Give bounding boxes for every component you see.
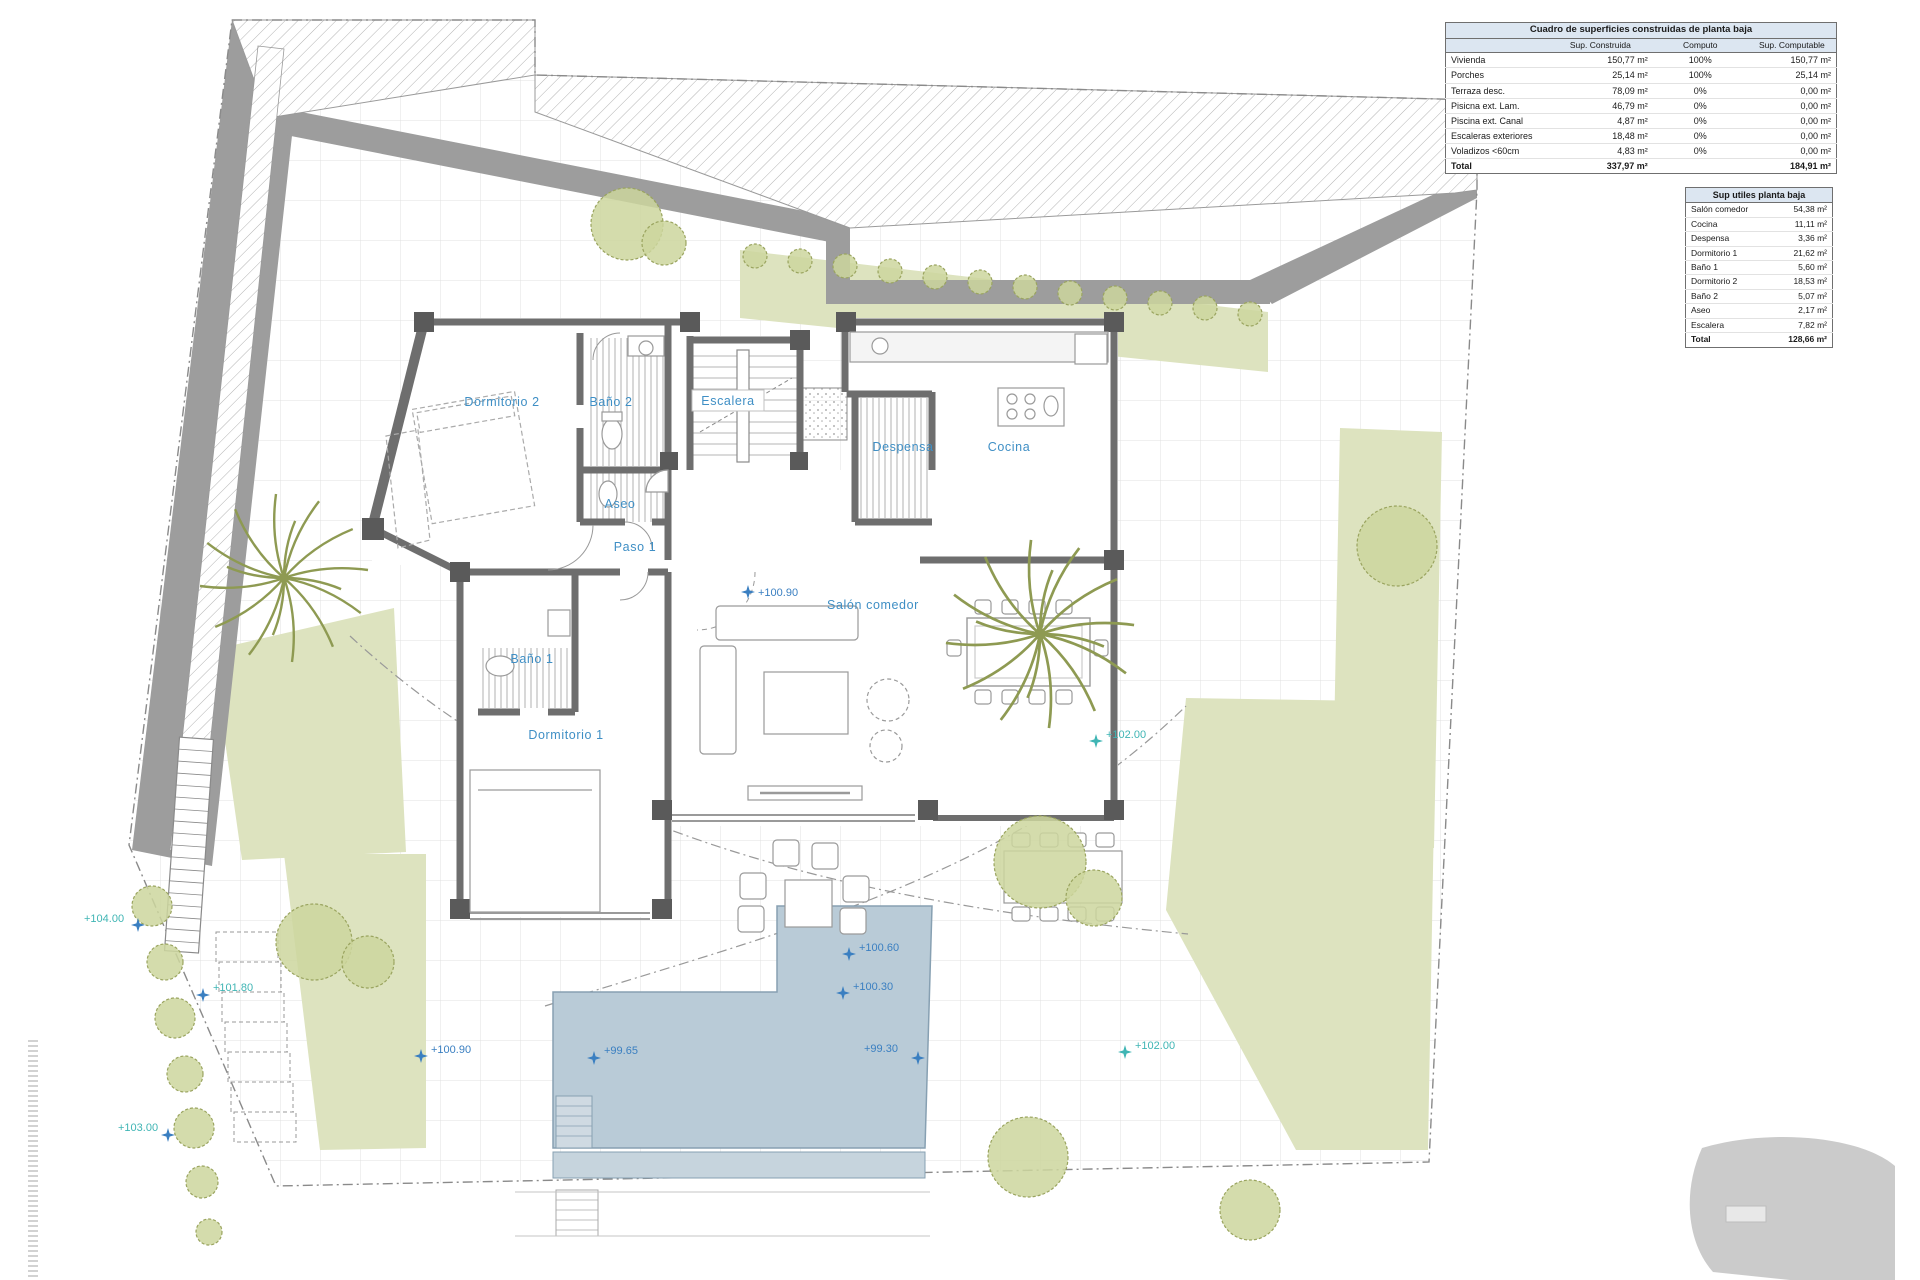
room-label-escalera: Escalera — [701, 394, 754, 408]
table-title-row: Sup utiles planta baja — [1686, 188, 1833, 203]
room-label-bano2: Baño 2 — [589, 395, 632, 409]
room-label-dormitorio1: Dormitorio 1 — [528, 728, 603, 742]
room-label-salon-comedor: Salón comedor — [827, 598, 919, 612]
col-header — [1446, 38, 1548, 52]
table-row: Escaleras exteriores 18,48 m² 0% 0,00 m² — [1446, 128, 1837, 143]
svg-text:+100.90: +100.90 — [758, 587, 798, 599]
table-row: Dormitorio 1 21,62 m² — [1686, 246, 1833, 260]
table-row: Cocina 11,11 m² — [1686, 217, 1833, 231]
svg-text:+99.30: +99.30 — [864, 1043, 898, 1055]
col-header: Sup. Construida — [1548, 38, 1653, 52]
room-label-aseo: Aseo — [605, 497, 636, 511]
table-row: Piscina ext. Canal 4,87 m² 0% 0,00 m² — [1446, 113, 1837, 128]
table-row: Baño 1 5,60 m² — [1686, 261, 1833, 275]
svg-text:+101.80: +101.80 — [213, 982, 253, 994]
pool-channel — [553, 1152, 925, 1178]
svg-text:+99.65: +99.65 — [604, 1045, 638, 1057]
table-row: Dormitorio 2 18,53 m² — [1686, 275, 1833, 289]
col-header: Computo — [1653, 38, 1748, 52]
lightwell — [798, 388, 847, 440]
fine-print-vertical-text — [28, 1040, 38, 1278]
level-marker: +103.00 — [118, 1122, 175, 1142]
svg-text:+102.00: +102.00 — [1135, 1040, 1175, 1052]
svg-text:+100.30: +100.30 — [853, 981, 893, 993]
pool-steps — [556, 1096, 592, 1148]
table-row: Aseo 2,17 m² — [1686, 304, 1833, 318]
table-row: Baño 2 5,07 m² — [1686, 289, 1833, 303]
room-label-cocina: Cocina — [988, 440, 1031, 454]
table-row: Pisicna ext. Lam. 46,79 m² 0% 0,00 m² — [1446, 98, 1837, 113]
corner-mask-blob — [1690, 1137, 1895, 1280]
table-row: Salón comedor 54,38 m² — [1686, 203, 1833, 217]
table-total-row: Total 128,66 m² — [1686, 333, 1833, 347]
svg-text:+100.90: +100.90 — [431, 1044, 471, 1056]
table-superficies-utiles: Sup utiles planta baja Salón comedor 54,… — [1685, 187, 1833, 348]
site-plan-drawing: Dormitorio 2 Baño 2 Escalera Despensa Co… — [0, 0, 1920, 1280]
table-row: Terraza desc. 78,09 m² 0% 0,00 m² — [1446, 83, 1837, 98]
room-label-paso1: Paso 1 — [614, 540, 657, 554]
floor-plan-sheet: Dormitorio 2 Baño 2 Escalera Despensa Co… — [0, 0, 1920, 1280]
table-row: Porches 25,14 m² 100% 25,14 m² — [1446, 68, 1837, 83]
table-superficies-construidas: Cuadro de superficies construidas de pla… — [1445, 22, 1837, 174]
table-row: Vivienda 150,77 m² 100% 150,77 m² — [1446, 53, 1837, 68]
room-label-dormitorio2: Dormitorio 2 — [464, 395, 539, 409]
table-row: Voladizos <60cm 4,83 m² 0% 0,00 m² — [1446, 144, 1837, 159]
table-row: Despensa 3,36 m² — [1686, 232, 1833, 246]
svg-text:+100.60: +100.60 — [859, 942, 899, 954]
table-title: Cuadro de superficies construidas de pla… — [1446, 23, 1837, 39]
svg-text:+102.00: +102.00 — [1106, 729, 1146, 741]
room-label-bano1: Baño 1 — [510, 652, 553, 666]
table-total-row: Total 337,97 m² 184,91 m² — [1446, 159, 1837, 174]
svg-text:+103.00: +103.00 — [118, 1122, 158, 1134]
table-row: Escalera 7,82 m² — [1686, 318, 1833, 332]
table-title: Sup utiles planta baja — [1686, 188, 1833, 203]
table-title-row: Cuadro de superficies construidas de pla… — [1446, 23, 1837, 39]
col-header: Sup. Computable — [1748, 38, 1837, 52]
room-label-despensa: Despensa — [872, 440, 933, 454]
pantry-floor — [858, 398, 928, 518]
svg-text:+104.00: +104.00 — [84, 913, 124, 925]
table-header-row: Sup. Construida Computo Sup. Computable — [1446, 38, 1837, 52]
